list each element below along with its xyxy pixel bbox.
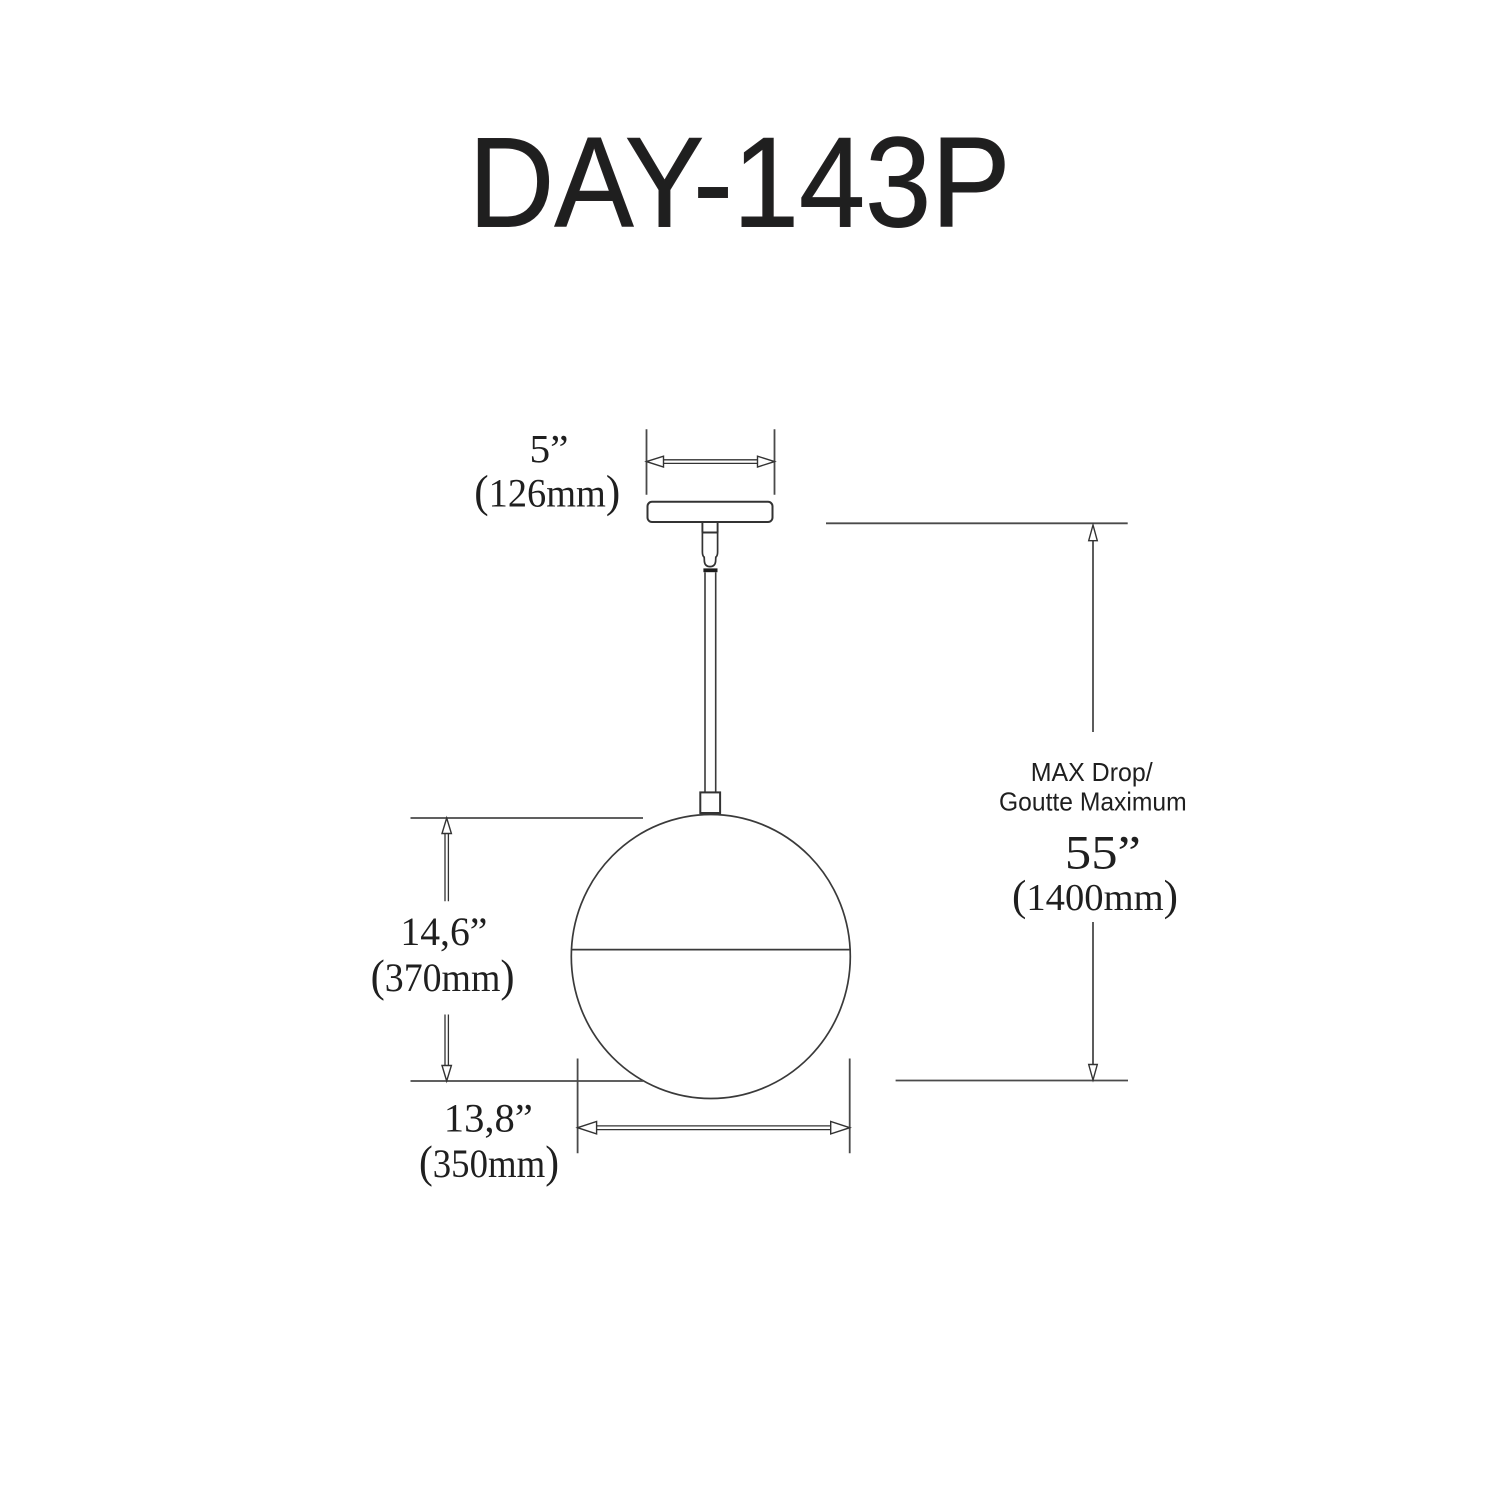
svg-text:5”: 5” bbox=[530, 426, 569, 471]
svg-text:DAY-143P: DAY-143P bbox=[469, 112, 1011, 255]
svg-text:14,6”: 14,6” bbox=[400, 909, 487, 954]
svg-text:(350mm): (350mm) bbox=[419, 1137, 559, 1187]
svg-text:MAX Drop/: MAX Drop/ bbox=[1031, 757, 1154, 787]
svg-text:(126mm): (126mm) bbox=[474, 467, 620, 517]
svg-text:(370mm): (370mm) bbox=[371, 951, 515, 1001]
svg-text:Goutte Maximum: Goutte Maximum bbox=[999, 786, 1187, 816]
svg-text:13,8”: 13,8” bbox=[444, 1096, 533, 1141]
svg-text:(1400mm): (1400mm) bbox=[1012, 873, 1178, 920]
svg-text:55”: 55” bbox=[1065, 826, 1141, 879]
